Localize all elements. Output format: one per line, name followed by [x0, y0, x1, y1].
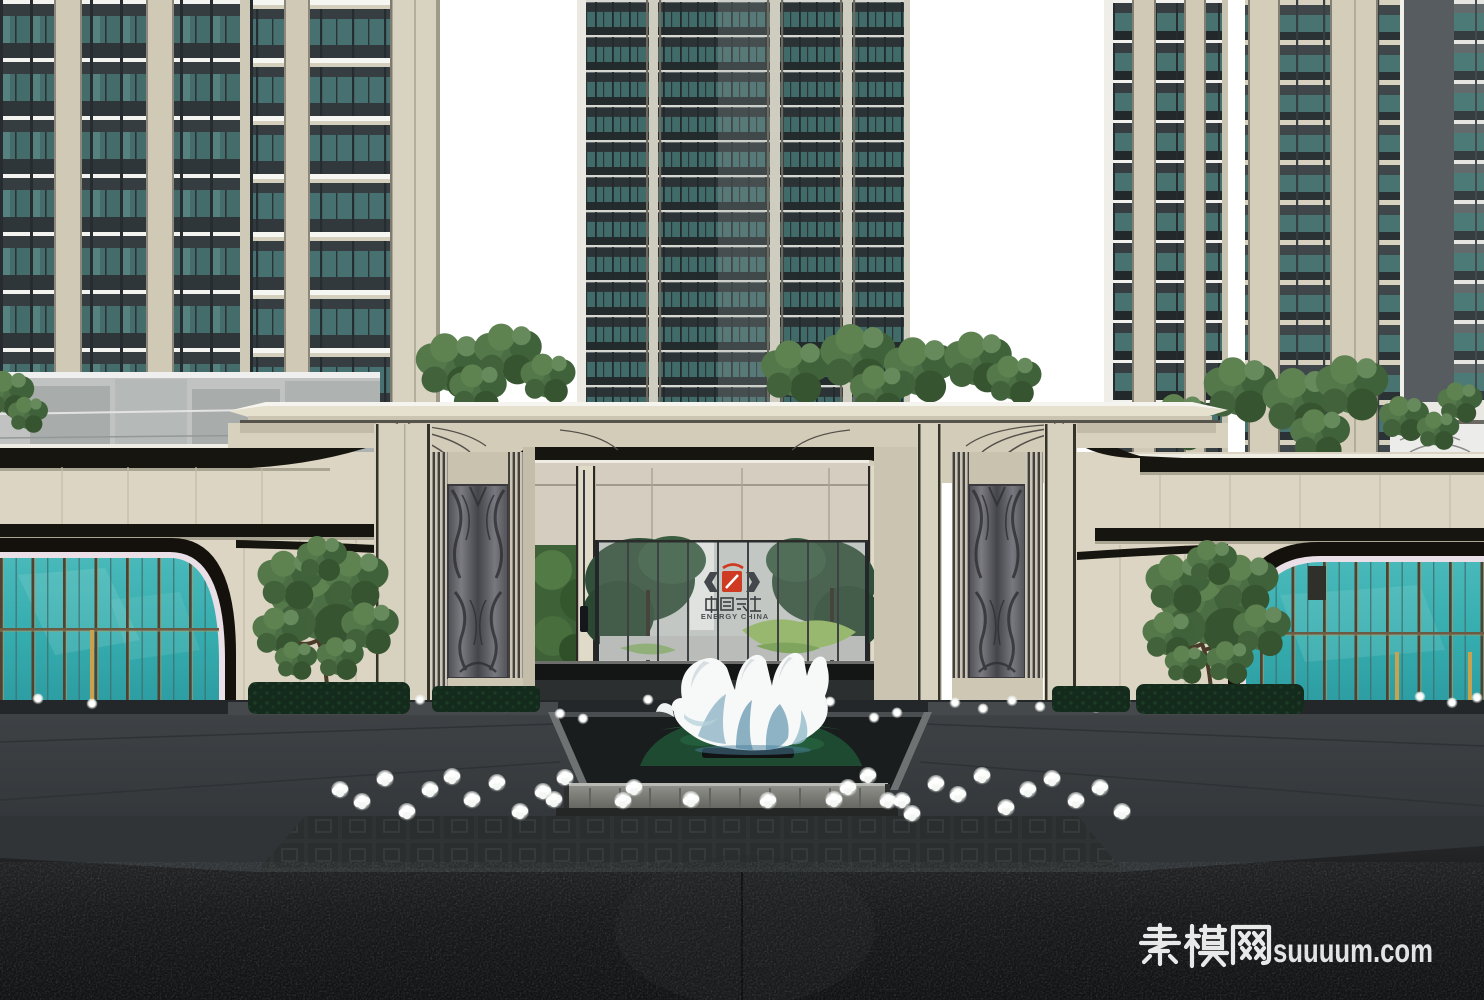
svg-text:ENERGY CHINA: ENERGY CHINA — [701, 612, 769, 621]
svg-text:suuuum.com: suuuum.com — [1273, 932, 1433, 969]
